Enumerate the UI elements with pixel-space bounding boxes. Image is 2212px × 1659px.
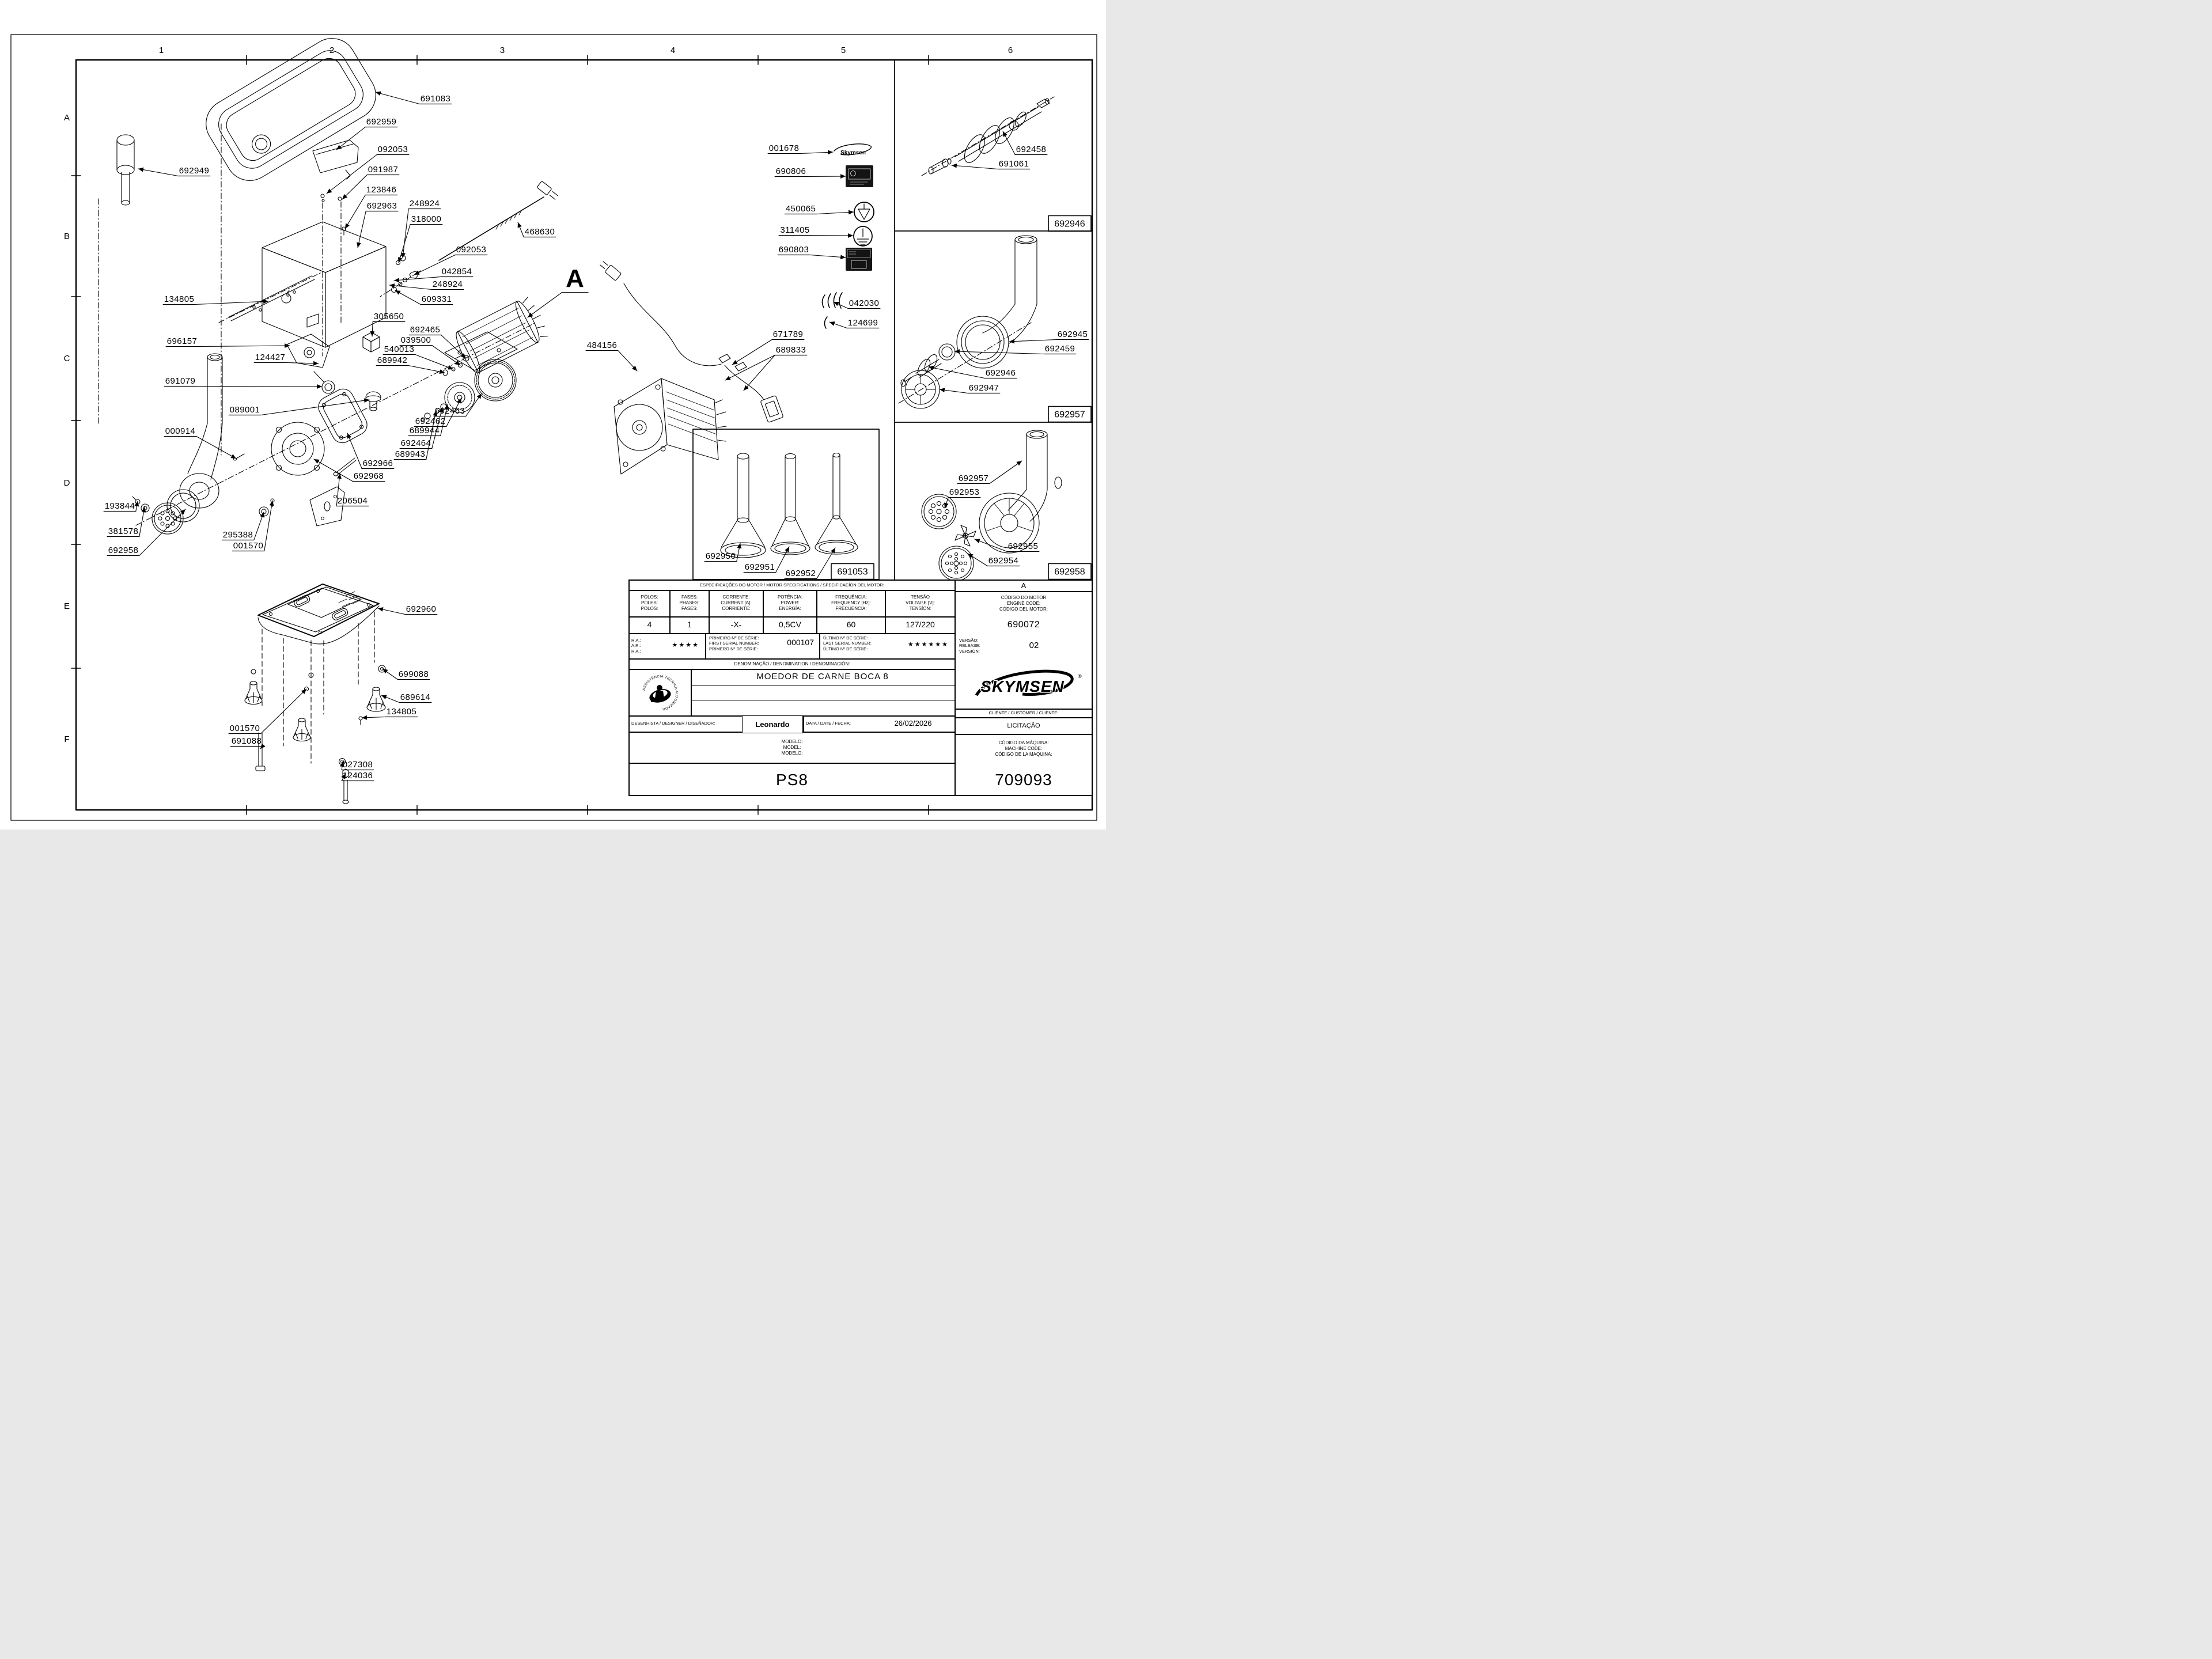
- guard-692959: [313, 140, 358, 235]
- part-callout: 692947: [969, 383, 999, 393]
- leader-line: [336, 127, 365, 150]
- spec-value-current: -X-: [710, 617, 763, 633]
- sticker-warning-690803: [846, 248, 872, 271]
- part-callout: 699088: [399, 669, 429, 679]
- part-callout: 692966: [363, 459, 393, 468]
- grid-row-label: F: [64, 734, 69, 744]
- revision-cell: A: [956, 581, 1092, 591]
- knob: [367, 687, 385, 711]
- grid-row-label: A: [64, 113, 70, 123]
- part-callout: 609331: [422, 294, 452, 304]
- model-label: MODELO:MODEL:MODELO:: [630, 733, 955, 763]
- part-callout: 692952: [786, 569, 816, 578]
- part-callout: 692946: [986, 368, 1016, 378]
- spec-value-phases: 1: [671, 617, 709, 633]
- leader-line: [381, 695, 399, 703]
- pusher-692949: [117, 135, 134, 205]
- part-callout: 692464: [401, 438, 431, 448]
- leader-line: [376, 92, 419, 104]
- leader-line: [415, 355, 453, 370]
- leader-line: [929, 367, 984, 378]
- part-callout: 692957: [959, 474, 988, 483]
- spec-header-voltage: TENSÃOVOLTAGE [V]:TENSÍON:: [886, 590, 955, 616]
- part-callout: 692958: [108, 546, 138, 555]
- leader-line: [196, 437, 236, 459]
- part-callout: 692953: [949, 487, 979, 497]
- detail-view-marker: A: [566, 264, 584, 293]
- leader-line: [378, 608, 405, 615]
- leader-line: [261, 400, 369, 415]
- leader-line: [810, 255, 846, 258]
- leader-line: [362, 717, 385, 718]
- part-callout: 468630: [525, 227, 555, 237]
- leader-line: [518, 222, 524, 237]
- section-label: 691053: [837, 567, 868, 577]
- grid-column-label: 6: [1008, 46, 1013, 55]
- motor-main: [445, 295, 551, 379]
- leader-line: [800, 152, 833, 154]
- grid-row-label: B: [64, 232, 70, 241]
- tray-691083: [197, 29, 385, 190]
- part-callout: 248924: [410, 199, 440, 209]
- spec-section-title: ESPECIFICAÇÕES DO MOTOR / MOTOR SPECIFIC…: [630, 581, 955, 590]
- panel-worm-692946: [922, 97, 1054, 176]
- part-callout: 124427: [255, 353, 285, 362]
- spec-header-poles: PÓLOS:POLES:POLOS:: [630, 590, 669, 616]
- leader-line: [138, 169, 178, 176]
- sticker-instructions-690806: [846, 165, 873, 187]
- part-callout: 692459: [1045, 344, 1075, 354]
- spec-header-phases: FASES:PHASES:FASES:: [671, 590, 709, 616]
- part-callout: 692463: [435, 406, 465, 416]
- part-callout: 692968: [354, 471, 384, 481]
- part-callout: 089001: [230, 405, 260, 415]
- sticker-ground-311405: [854, 226, 872, 246]
- brand-registered-mark: ®: [1078, 673, 1082, 679]
- part-callout: 689943: [395, 449, 425, 459]
- leader-line: [1003, 131, 1015, 155]
- switch-block-305650: [363, 332, 380, 352]
- part-callout: 692960: [406, 604, 436, 614]
- part-callout: 540013: [384, 344, 414, 354]
- ra-value: ★★★★: [672, 642, 699, 650]
- part-callout: 691083: [421, 94, 450, 104]
- grid-row-label: E: [64, 601, 70, 611]
- spec-value-power: 0,5CV: [764, 617, 816, 633]
- knife-692955: [955, 525, 976, 546]
- leader-line: [975, 539, 1007, 552]
- motor-code-value: 690072: [956, 617, 1092, 633]
- grid-column-label: 2: [329, 46, 334, 55]
- grid-column-label: 3: [500, 46, 505, 55]
- leader-line: [139, 507, 145, 537]
- part-callout: 091987: [368, 165, 398, 175]
- tie-rods-134805: [228, 276, 315, 321]
- leader-line: [432, 346, 460, 366]
- part-callout: 692954: [988, 556, 1018, 566]
- sticker-skymsen-001678: Skymsen: [834, 144, 871, 156]
- version-label: VERSÃO:RELEASE:VERSIÓN:: [959, 634, 1005, 657]
- part-callout: 042854: [442, 267, 472, 276]
- part-callout: 692945: [1058, 329, 1088, 339]
- part-callout: 123846: [366, 185, 396, 195]
- leader-line: [807, 176, 846, 177]
- grid-row-label: D: [64, 478, 70, 488]
- denomination-header: DENOMINAÇÃO / DENOMINATION / DENOMINACIÓ…: [630, 659, 955, 669]
- leader-line: [139, 509, 185, 556]
- part-callout: 690803: [779, 245, 809, 255]
- part-callout: 042030: [849, 298, 879, 308]
- part-callout: 689944: [410, 426, 440, 435]
- part-callout: 305650: [374, 312, 404, 321]
- part-callout: 691079: [165, 376, 195, 386]
- part-callout: 001678: [769, 143, 799, 153]
- leader-line: [725, 355, 775, 381]
- knob: [245, 681, 262, 704]
- leader-line: [990, 461, 1022, 484]
- date-label: DATA / DATE / FECHA:: [806, 716, 875, 731]
- spec-value-voltage: 127/220: [886, 617, 955, 633]
- ra-cell: R.A.:A.R.:R.A.: ★★★★: [631, 634, 704, 657]
- part-callout: 484156: [587, 340, 617, 350]
- part-callout: 450065: [786, 204, 816, 214]
- machine-code-value: 709093: [956, 764, 1092, 795]
- part-callout: 692458: [1016, 145, 1046, 154]
- designer-value: Leonardo: [755, 720, 789, 729]
- designer-label: DESENHISTA / DESIGNER / DISEÑADOR:: [631, 716, 741, 731]
- gasket-692966: [315, 385, 371, 446]
- leader-line: [466, 393, 482, 416]
- motor-housing-692963: [262, 222, 386, 347]
- detail-panels: [693, 60, 1092, 579]
- part-callout: 692462: [415, 416, 445, 426]
- spec-value-frequency: 60: [817, 617, 885, 633]
- part-callout: 134805: [387, 707, 416, 717]
- part-callout: 689614: [400, 692, 430, 702]
- motor-detail-a: [599, 260, 842, 474]
- part-callout: 124036: [343, 771, 373, 781]
- funnels-691053: [721, 453, 858, 558]
- part-callout: 690806: [776, 166, 806, 176]
- part-callout: 692465: [410, 325, 440, 335]
- part-callout: 318000: [411, 214, 441, 224]
- grid-column-label: 4: [671, 46, 675, 55]
- part-callout: 092053: [456, 245, 486, 255]
- leader-line: [737, 543, 740, 562]
- part-callout: 001570: [230, 724, 260, 733]
- part-callout: 311405: [780, 225, 809, 235]
- brand-logo: SKYMSEN ®: [956, 660, 1092, 709]
- section-label: 692946: [1054, 219, 1085, 229]
- leader-line: [358, 211, 366, 248]
- leader-line: [254, 512, 264, 540]
- leader-line: [829, 322, 847, 328]
- part-callout: 124699: [848, 318, 878, 328]
- leader-line: [744, 355, 775, 391]
- part-callout: 689833: [776, 345, 806, 355]
- part-callout: 000914: [165, 426, 195, 436]
- leader-line: [286, 363, 319, 364]
- grid-column-label: 5: [841, 46, 846, 55]
- title-block: ESPECIFICAÇÕES DO MOTOR / MOTOR SPECIFIC…: [628, 579, 1093, 796]
- part-callout: 696157: [167, 336, 197, 346]
- leader-line: [952, 165, 998, 169]
- first-serial-cell: PRIMEIRO Nº DE SÉRIE:FIRST SERIAL NUMBER…: [708, 634, 817, 657]
- sticker-symbol-450065: [854, 202, 874, 222]
- part-callout: 692959: [366, 117, 396, 127]
- brand-logo-text: SKYMSEN: [980, 677, 1064, 695]
- leader-line: [347, 433, 362, 469]
- part-callout: 295388: [223, 530, 253, 540]
- part-callout: 206504: [338, 496, 368, 506]
- part-callout: 001570: [233, 541, 263, 551]
- leader-line: [389, 285, 431, 290]
- leader-line: [811, 236, 853, 236]
- part-callout: 092053: [378, 145, 408, 154]
- leader-line: [940, 389, 968, 393]
- spec-header-power: POTÊNCIA:POWER:ENERGÍA:: [764, 590, 816, 616]
- part-callout: 671789: [773, 329, 803, 339]
- leader-line: [399, 225, 410, 263]
- motor-code-label: CÓDIGO DO MOTORENGINE CODE:CÓDIGO DEL MO…: [956, 592, 1092, 616]
- part-callout: 692950: [706, 551, 736, 561]
- part-callout: 691061: [999, 159, 1029, 169]
- spec-header-current: CORRENTE:CURRENT [A]:CORRIENTE:: [710, 590, 763, 616]
- bearing-flange-692968: [271, 422, 324, 475]
- part-callout: 381578: [108, 527, 138, 536]
- leader-line: [345, 195, 365, 229]
- part-callout: 692963: [367, 201, 397, 211]
- panel-head-692957: [899, 236, 1037, 408]
- part-callout: 691088: [232, 736, 262, 746]
- leader-line: [618, 351, 637, 372]
- authorized-service-stamp: ASSISTÊNCIA TÉCNICA AUTORIZADA: [630, 669, 691, 715]
- section-label: 692957: [1054, 410, 1085, 420]
- first-serial-value: 000107: [787, 638, 814, 648]
- customer-label: CLIENTE / CUSTOMER / CLIENTE:: [956, 709, 1092, 717]
- leader-line: [528, 293, 562, 317]
- grid-column-label: 1: [159, 46, 164, 55]
- version-value: 02: [1005, 634, 1063, 657]
- leader-line: [314, 459, 353, 482]
- base-plate-692960: [258, 584, 379, 644]
- leader-line: [136, 501, 138, 512]
- designer-value-box: Leonardo: [742, 715, 803, 733]
- small-fasteners: [233, 454, 356, 526]
- knob-089001: [366, 392, 381, 411]
- sticker-brand-text: Skymsen: [840, 150, 866, 156]
- spec-header-frequency: FREQUÊNCIA:FREQUENCY [Hz]:FRECUENCIA:: [817, 590, 885, 616]
- last-serial-cell: ÚLTIMO Nº DE SÉRIE:LAST SERIAL NUMBER:ÚL…: [822, 634, 953, 657]
- leader-line: [196, 387, 322, 387]
- leader-line: [1009, 340, 1056, 342]
- crank-bolt-691079: [314, 372, 335, 393]
- drawing-sheet: Skymsen: [0, 0, 1106, 829]
- leader-line: [408, 366, 445, 373]
- denomination-value: MOEDOR DE CARNE BOCA 8: [691, 669, 955, 685]
- leader-line: [382, 669, 397, 680]
- leader-line: [264, 501, 272, 551]
- part-callout: 692949: [179, 166, 209, 176]
- part-callout: 027308: [343, 760, 373, 770]
- part-callout: 193844: [105, 501, 135, 511]
- last-serial-value: ★★★★★★: [908, 641, 949, 649]
- part-callout: 134805: [164, 294, 194, 304]
- knob: [293, 718, 310, 741]
- section-label: 692958: [1054, 567, 1085, 577]
- part-callout: 692951: [745, 562, 775, 572]
- part-callout: 039500: [401, 335, 431, 345]
- grid-row-label: C: [64, 354, 70, 363]
- part-callout: 692955: [1008, 541, 1038, 551]
- leader-line: [395, 290, 421, 305]
- model-value: PS8: [630, 764, 955, 795]
- leader-line: [732, 340, 772, 365]
- leader-line: [955, 351, 1044, 354]
- leader-line: [817, 212, 854, 214]
- leader-line: [198, 346, 290, 347]
- machine-code-label: CÓDIGO DA MÁQUINA:MACHINE CODE:CÓDIGO DE…: [956, 735, 1092, 763]
- part-callout: 689942: [377, 355, 407, 365]
- customer-value: LICITAÇÃO: [956, 718, 1092, 734]
- date-value: 26/02/2026: [872, 716, 955, 731]
- spec-value-poles: 4: [630, 617, 669, 633]
- part-callout: 248924: [433, 279, 463, 289]
